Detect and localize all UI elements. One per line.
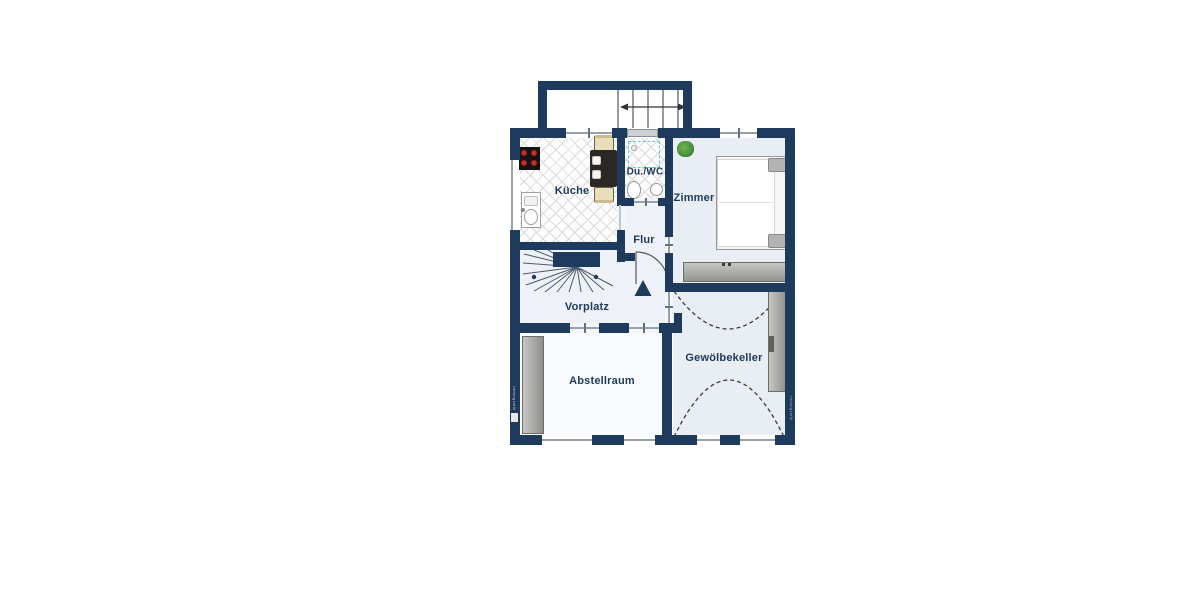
wall-top [658,128,720,138]
opening-tick [645,198,647,206]
watermark-right: Immografik [789,396,794,436]
floorplan-canvas: Küche Du./WC Zimmer Flur Vorplatz Abstel… [0,0,1200,600]
room-label-duwc: Du./WC [627,167,664,178]
window-tick [588,128,590,138]
room-label-vorplatz: Vorplatz [565,301,609,313]
wall-bedroom-cellar [665,283,785,292]
toilet [627,181,641,199]
wall-vorplatz-storage [599,323,629,333]
watermark-chip [511,413,518,422]
wall-vorplatz-storage [659,323,682,333]
storage-cabinet [522,336,544,434]
duvet-crease [719,202,773,203]
wall-bottom [655,435,697,445]
sideboard-handle [722,263,725,266]
opening [619,205,621,230]
room-label-flur: Flur [633,234,655,246]
window-bath [627,129,658,137]
watermark-left: Immografik [512,386,517,412]
annex-wall-left [538,90,547,128]
wall-top [510,128,566,138]
wall-top [757,128,795,138]
shower-drain [631,145,637,151]
drainboard [524,196,538,206]
window [624,439,655,441]
wall-bottom [510,435,542,445]
opening-tick [643,323,645,333]
wall-door-stub [625,253,635,261]
room-label-gewoelbekeller: Gewölbekeller [685,352,762,364]
sideboard [683,262,789,282]
burner [531,160,537,166]
cellar-shelf-detail [769,336,774,352]
opening-tick [665,244,673,246]
opening-tick [584,323,586,333]
wall-bedroom-left-upper [665,138,673,237]
wall-bath-bottom [658,198,665,206]
washbasin [650,183,663,196]
opening-tick [665,306,673,308]
wall-kitchen-bottom [510,242,625,250]
window [542,439,592,441]
room-label-zimmer: Zimmer [674,192,715,204]
plate [592,156,601,165]
chair [594,187,614,203]
wall-passage-stub [674,313,682,323]
room-label-kueche: Küche [555,185,590,197]
faucet [521,208,525,212]
annex-floor [547,90,683,128]
annex-wall-right [683,90,692,128]
sink-basin [524,209,538,225]
window [697,439,720,441]
chair [594,135,614,151]
wall-bottom [720,435,740,445]
wall-vorplatz-storage [510,323,570,333]
wall-top [612,128,627,138]
wall-bath-left [617,138,625,205]
opening [668,292,670,323]
room-label-abstellraum: Abstellraum [569,375,635,387]
burner [521,150,527,156]
window [511,160,513,230]
wall-bottom [592,435,624,445]
burner [531,150,537,156]
sideboard-handle [728,263,731,266]
plant [677,141,694,157]
window [740,439,775,441]
annex-wall-top [538,81,692,90]
plate [592,170,601,179]
wall-storage-cellar [662,333,672,435]
window-tick [738,128,740,138]
duvet [717,159,775,247]
burner [521,160,527,166]
wall-bottom [775,435,795,445]
